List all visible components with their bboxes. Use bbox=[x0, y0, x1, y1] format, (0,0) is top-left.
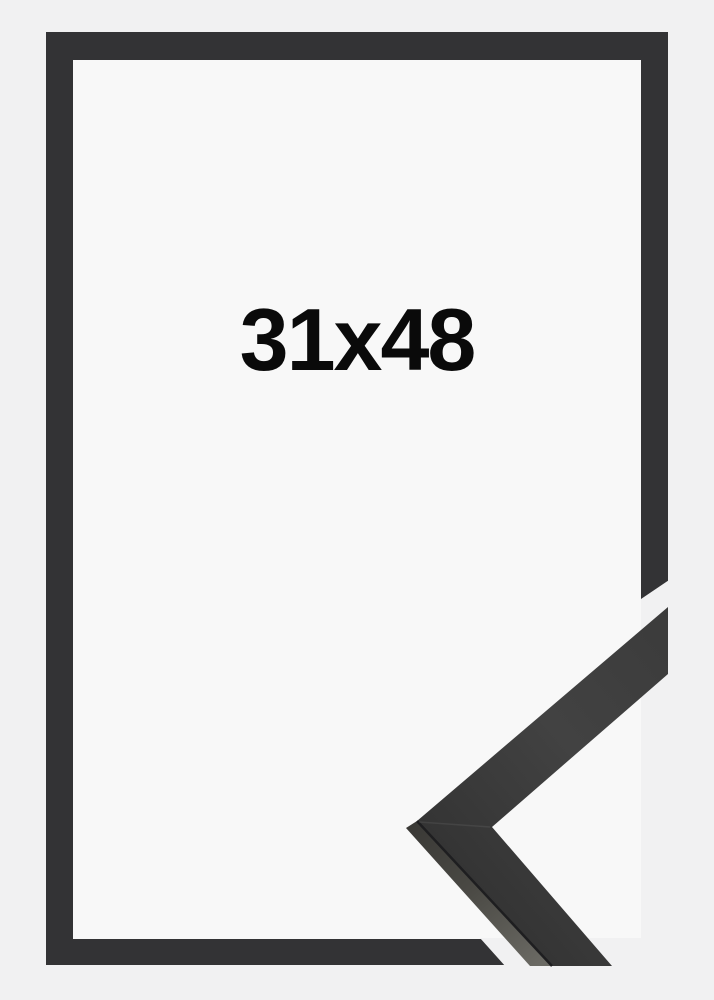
frame-graphic bbox=[0, 0, 714, 1000]
size-label: 31x48 bbox=[46, 296, 668, 384]
frame-opening bbox=[73, 60, 641, 939]
product-image: 31x48 bbox=[0, 0, 714, 1000]
